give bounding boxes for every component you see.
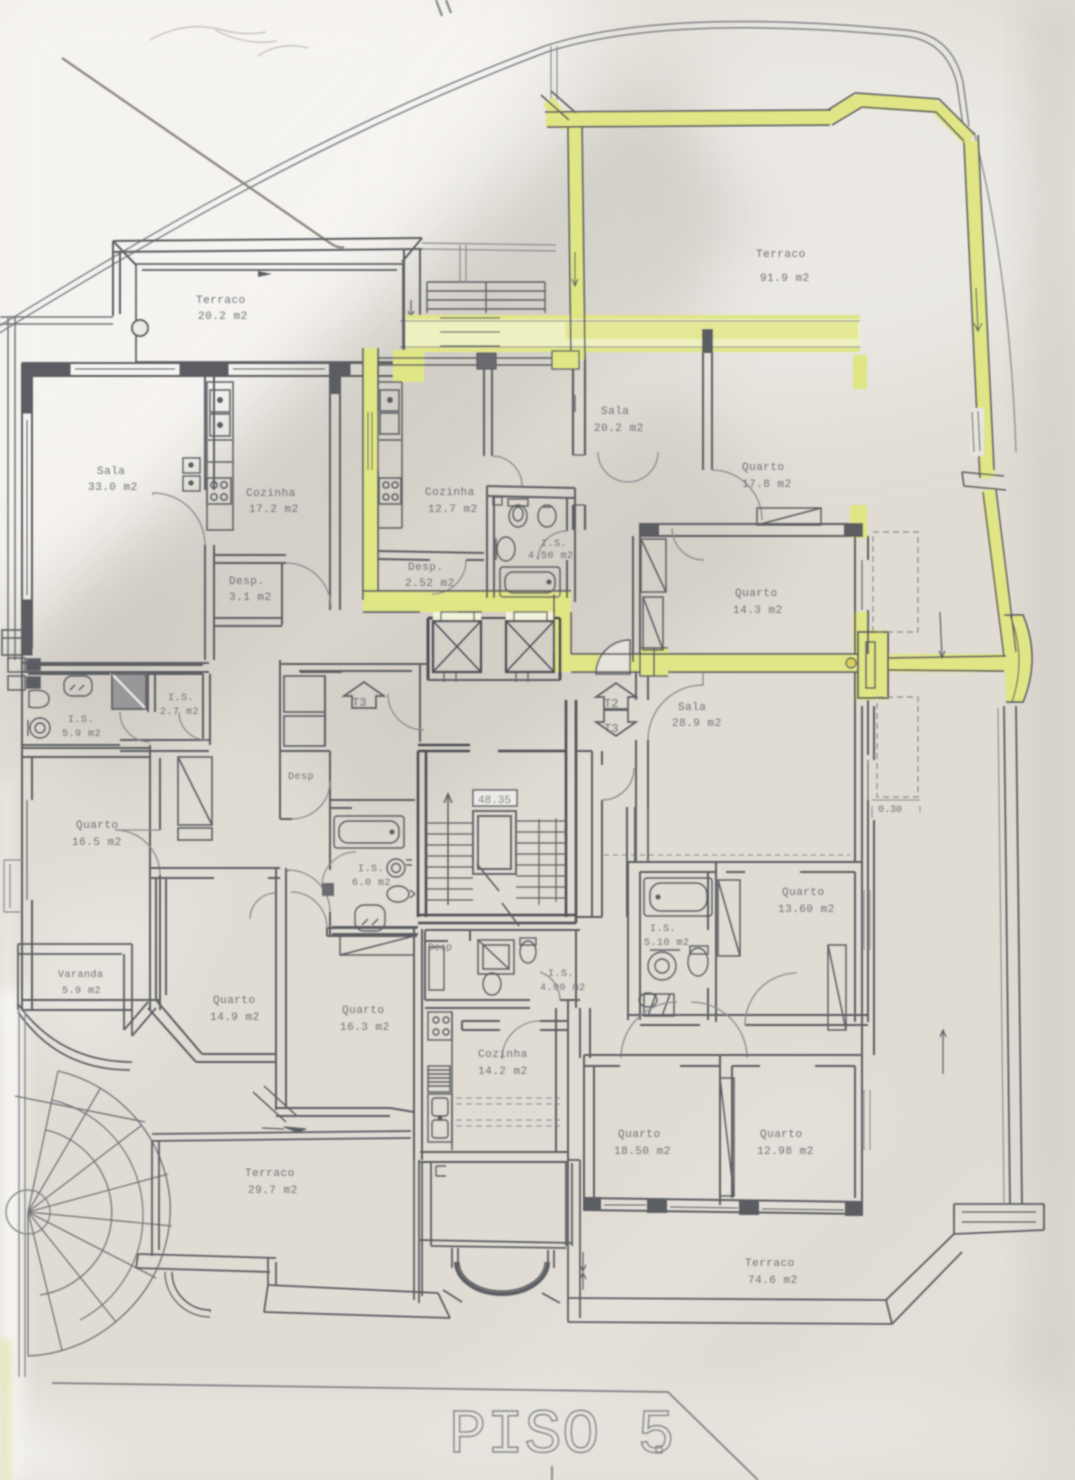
svg-text:Quarto: Quarto [760,1129,803,1141]
svg-text:Quarto: Quarto [735,588,778,600]
svg-text:14.2 m2: 14.2 m2 [478,1066,528,1078]
svg-text:T3: T3 [352,696,366,710]
svg-text:Terraco: Terraco [245,1168,295,1180]
svg-text:I.S.: I.S. [548,969,574,980]
svg-text:PISO 5: PISO 5 [449,1400,675,1471]
svg-text:13.60 m2: 13.60 m2 [778,904,835,916]
svg-text:T2: T2 [604,697,618,711]
svg-text:2.52 m2: 2.52 m2 [405,578,455,590]
svg-text:Desp.: Desp. [408,562,444,574]
svg-text:4.50 m2: 4.50 m2 [528,551,574,562]
svg-text:Terraco: Terraco [756,249,806,261]
svg-text:Sala: Sala [97,466,125,478]
svg-text:12.98 m2: 12.98 m2 [757,1146,814,1158]
svg-text:5.9 m2: 5.9 m2 [62,986,101,997]
svg-text:17.8 m2: 17.8 m2 [742,479,792,491]
svg-text:Terraco: Terraco [745,1258,795,1270]
svg-text:Cozinha: Cozinha [478,1049,528,1061]
svg-text:Quarto: Quarto [782,887,825,899]
svg-text:5.10 m2: 5.10 m2 [644,938,690,949]
svg-text:6.0 m2: 6.0 m2 [352,878,391,889]
svg-text:Desp: Desp [288,772,314,783]
svg-text:91.9 m2: 91.9 m2 [760,273,810,285]
svg-text:14.3 m2: 14.3 m2 [733,605,783,617]
svg-text:16.5 m2: 16.5 m2 [72,837,122,849]
svg-text:T3: T3 [604,722,618,736]
svg-text:4.00 m2: 4.00 m2 [540,983,586,994]
svg-text:48.35: 48.35 [478,795,511,807]
svg-text:Quarto: Quarto [618,1129,661,1141]
svg-text:29.7 m2: 29.7 m2 [248,1185,298,1197]
svg-text:Quarto: Quarto [342,1005,385,1017]
svg-text:Cozinha: Cozinha [246,488,296,500]
svg-text:74.6 m2: 74.6 m2 [748,1275,798,1287]
svg-text:20.2 m2: 20.2 m2 [594,423,644,435]
svg-text:28.9 m2: 28.9 m2 [672,718,722,730]
svg-text:18.50 m2: 18.50 m2 [614,1146,671,1158]
svg-text:I.S.: I.S. [650,924,676,935]
svg-text:12.7 m2: 12.7 m2 [428,504,478,516]
svg-text:I.S.: I.S. [168,693,194,704]
svg-text:Sala: Sala [601,406,629,418]
svg-text:Quarto: Quarto [742,462,785,474]
svg-text:I.S.: I.S. [541,539,567,550]
svg-text:33.0 m2: 33.0 m2 [88,482,138,494]
svg-text:0.30: 0.30 [878,805,902,816]
svg-text:Cozinha: Cozinha [425,487,475,499]
svg-text:Quarto: Quarto [213,995,256,1007]
svg-text:Desp.: Desp. [229,576,265,588]
svg-text:14.9 m2: 14.9 m2 [210,1012,260,1024]
svg-text:3.1 m2: 3.1 m2 [229,592,272,604]
svg-text:I.S.: I.S. [358,864,384,875]
svg-text:I.S.: I.S. [68,715,94,726]
svg-text:Sala: Sala [678,702,706,714]
svg-text:16.3 m2: 16.3 m2 [340,1022,390,1034]
svg-text:20.2 m2: 20.2 m2 [198,311,248,323]
svg-text:Varanda: Varanda [58,969,104,981]
svg-text:Terraco: Terraco [196,295,246,307]
svg-text:Quarto: Quarto [76,820,119,832]
svg-text:Desp: Desp [428,943,452,954]
svg-text:5.9 m2: 5.9 m2 [62,729,101,740]
